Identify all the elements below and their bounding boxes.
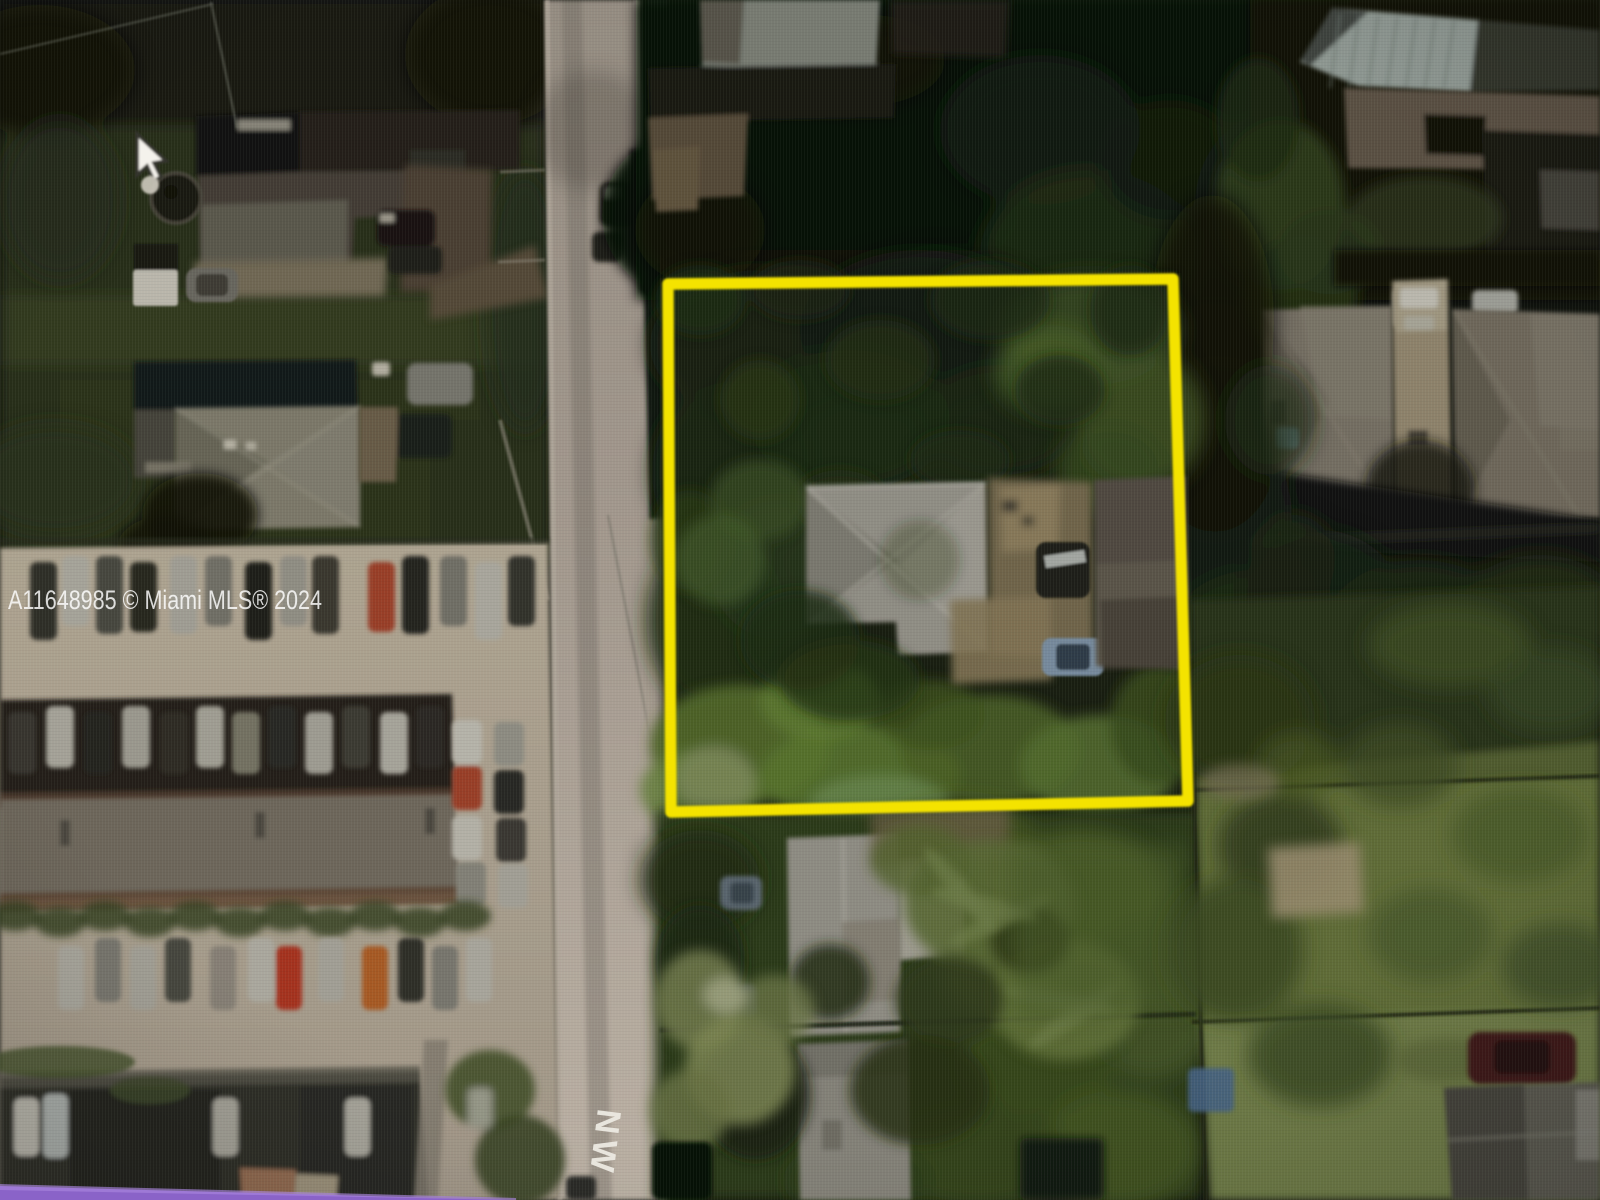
svg-text:A11648985 © Miami MLS® 2024: A11648985 © Miami MLS® 2024	[8, 585, 322, 615]
